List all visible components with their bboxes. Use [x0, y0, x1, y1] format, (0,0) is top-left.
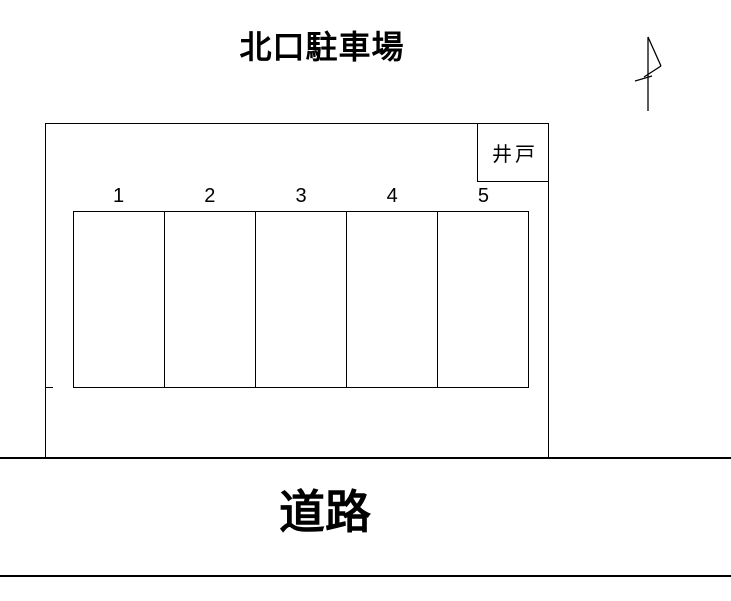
parking-stalls [73, 211, 529, 388]
page-title: 北口駐車場 [172, 30, 472, 64]
space-number-1: 1 [73, 184, 164, 210]
space-number-4: 4 [347, 184, 438, 210]
road-label: 道路 [225, 486, 425, 538]
parking-space-3 [256, 212, 347, 387]
north-arrow-icon [630, 33, 666, 113]
space-number-row: 1 2 3 4 5 [73, 184, 529, 210]
road-top-line [0, 457, 731, 459]
parking-space-1 [74, 212, 165, 387]
space-number-5: 5 [438, 184, 529, 210]
parking-space-4 [347, 212, 438, 387]
well-label: 井戸 [489, 138, 538, 167]
road-bottom-line [0, 575, 731, 577]
space-number-2: 2 [164, 184, 255, 210]
parking-space-5 [438, 212, 528, 387]
space-number-3: 3 [255, 184, 346, 210]
parking-space-2 [165, 212, 256, 387]
well-box: 井戸 [477, 123, 549, 182]
boundary-tick [45, 387, 53, 388]
